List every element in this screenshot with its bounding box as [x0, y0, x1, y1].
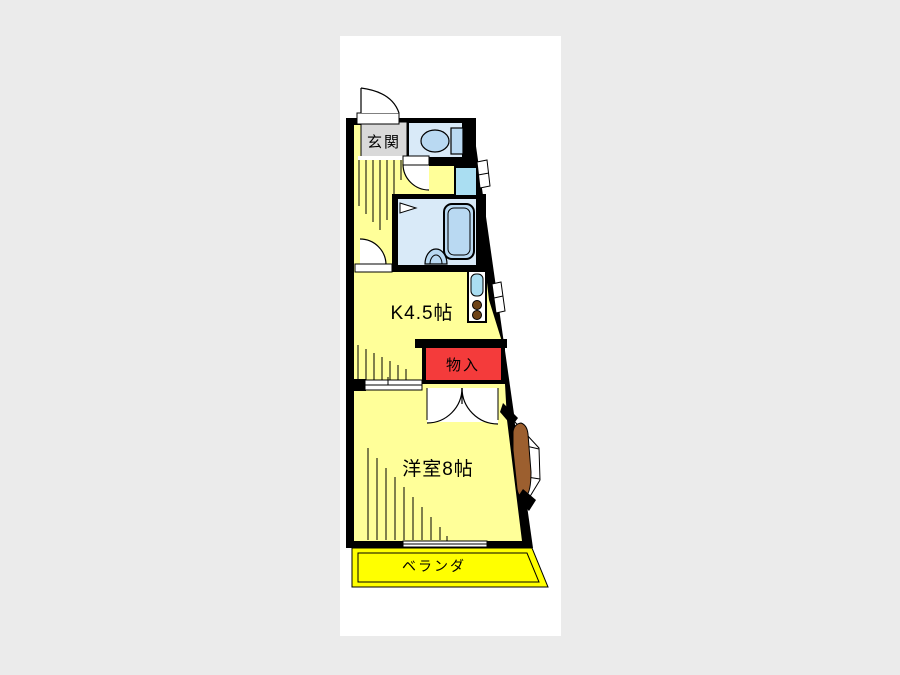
entrance-door-swing-icon: [357, 88, 399, 124]
toilet-icon: [421, 128, 463, 154]
kitchen-counter: [468, 271, 486, 322]
sink-icon: [471, 274, 483, 296]
genkan-label: 玄関: [367, 134, 401, 151]
bathtub-icon: [444, 204, 474, 259]
storage-label: 物入: [446, 357, 480, 374]
veranda-label: ベランダ: [402, 558, 466, 574]
washing-machine-icon: [455, 167, 477, 196]
genkan-step: [358, 156, 408, 160]
floorplan-drawing: 玄関 K4.5帖 物入 洋室8帖 ベランダ: [340, 36, 561, 636]
floorplan-page: 玄関 K4.5帖 物入 洋室8帖 ベランダ: [0, 0, 900, 675]
kitchen-label: K4.5帖: [390, 302, 453, 324]
closet-double-door-icon: [427, 388, 498, 424]
western-room-label: 洋室8帖: [402, 458, 474, 480]
floorplan-canvas: 玄関 K4.5帖 物入 洋室8帖 ベランダ: [340, 36, 561, 636]
